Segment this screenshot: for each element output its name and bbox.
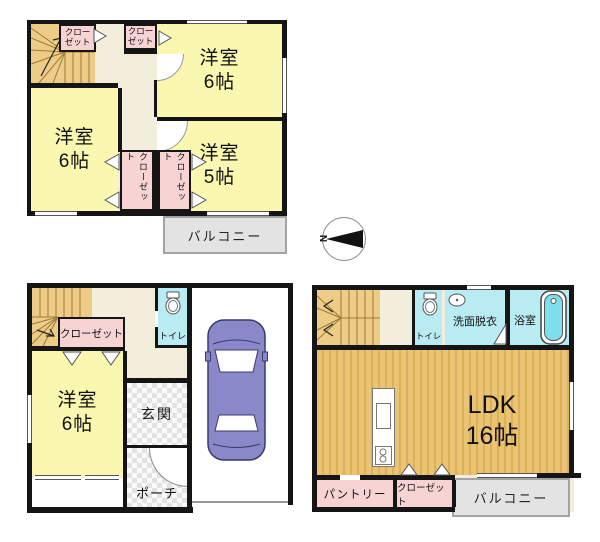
toilet-room: トイレ: [155, 288, 187, 348]
car-icon: [205, 318, 268, 463]
bathroom: 浴室: [510, 290, 569, 345]
closet-top-left: クロー ゼット: [59, 24, 96, 52]
door-opening: [340, 475, 360, 480]
toilet-room: トイレ: [412, 290, 442, 345]
window: [569, 382, 574, 430]
door-opening: [155, 311, 158, 327]
wall: [157, 117, 282, 121]
closet-top-mid: クロー ゼット: [124, 24, 157, 50]
carport-edge: [192, 501, 293, 503]
bedroom-top-right: 洋室6帖: [157, 24, 282, 117]
door-swing-arc: [149, 448, 188, 487]
folding-door-icon: [400, 463, 418, 476]
pantry-label: パントリー: [323, 486, 386, 502]
closet-label: クロー ゼット: [128, 27, 154, 47]
yard-strip: [32, 478, 123, 507]
folding-door-icon: [101, 351, 121, 366]
compass: N: [322, 217, 366, 261]
window: [35, 211, 77, 216]
washroom-label: 洗面脱衣: [453, 313, 497, 329]
ldk-room: LDK 16帖: [317, 350, 569, 475]
wall: [317, 345, 569, 350]
closet-label: クローゼット: [162, 152, 188, 209]
kitchen-sink: [376, 403, 391, 429]
wall: [154, 80, 157, 117]
wall: [123, 351, 127, 508]
window: [85, 475, 119, 480]
folding-door-icon: [104, 191, 120, 209]
wall: [31, 83, 118, 88]
porch-label: ポーチ: [136, 483, 178, 502]
folding-door-icon: [62, 351, 82, 366]
balcony-label: バルコニー: [188, 226, 263, 245]
closet: クローゼット: [397, 480, 452, 507]
room-size: 6帖: [54, 150, 94, 174]
window: [27, 395, 32, 443]
folding-door-icon: [191, 191, 207, 209]
wall: [118, 88, 122, 152]
pantry: パントリー: [317, 480, 393, 507]
balcony-top: バルコニー: [163, 216, 287, 254]
floor-plan-top: 洋室6帖 洋室6帖 洋室5帖: [27, 20, 287, 216]
entrance-hall: 玄関: [127, 383, 187, 445]
bathtub-icon: [540, 290, 567, 345]
closet-bottom-left: クローゼット: [120, 150, 154, 211]
wall: [288, 283, 293, 505]
stove-icon: [375, 446, 392, 465]
door-triangle-right: [93, 28, 107, 44]
bedroom: 洋室6帖: [32, 351, 123, 475]
wall: [187, 283, 192, 507]
balcony-label: バルコニー: [474, 488, 549, 507]
staircase: [317, 290, 380, 347]
bathroom-label: 浴室: [514, 312, 536, 328]
carport-apron: [192, 503, 293, 513]
door-triangle-right: [158, 30, 172, 46]
folding-door-icon: [191, 153, 207, 171]
floor-plan-sheet: 洋室6帖 洋室6帖 洋室5帖: [0, 0, 600, 542]
wall: [123, 445, 187, 448]
window: [467, 285, 491, 290]
wall: [312, 285, 574, 290]
room-name: 洋室: [54, 126, 94, 150]
wall: [452, 480, 456, 507]
floor-plan-bottom-right: LDK 16帖: [312, 285, 574, 512]
room-name: 洋室: [199, 47, 239, 71]
toilet-icon: [163, 291, 183, 315]
wall: [537, 473, 581, 478]
window: [282, 58, 287, 113]
window: [35, 475, 81, 480]
door-leaf: [493, 323, 507, 345]
room-name: 洋室: [57, 389, 97, 413]
porch: ポーチ: [127, 448, 187, 507]
sink-icon: [448, 293, 466, 307]
sliding-door: [207, 211, 269, 216]
wall: [282, 20, 287, 216]
closet-label: クローゼット: [124, 152, 150, 209]
wall: [27, 283, 293, 288]
toilet-icon: [420, 292, 440, 316]
window: [187, 20, 247, 24]
closet-label: クローゼット: [60, 326, 123, 341]
closet: クローゼット: [58, 317, 125, 349]
wall: [123, 378, 187, 383]
kitchen-counter: [372, 388, 395, 467]
room-size: 6帖: [199, 71, 239, 95]
sliding-door: [477, 473, 537, 478]
wall: [27, 20, 31, 216]
floor-plan-bottom-left: 洋室6帖 トイレ クローゼット 玄関 ポーチ: [27, 283, 293, 513]
toilet-label: トイレ: [158, 329, 187, 342]
wall: [27, 507, 193, 513]
balcony-bottom: バルコニー: [452, 478, 570, 517]
wall: [124, 50, 157, 54]
closet-bottom-right: クローゼット: [158, 150, 191, 211]
toilet-label: トイレ: [415, 330, 442, 342]
wall: [312, 285, 317, 512]
ldk-name: LDK: [422, 390, 562, 421]
entrance-label: 玄関: [141, 404, 173, 424]
closet-label: クロー ゼット: [65, 28, 91, 48]
closet-label: クローゼット: [397, 480, 452, 508]
folding-door-icon: [433, 463, 451, 476]
door-swing-arc: [157, 121, 188, 152]
door-swing-arc: [157, 54, 184, 81]
compass-north-label: N: [317, 235, 328, 242]
folding-door-icon: [104, 153, 120, 171]
compass-needle: [323, 218, 365, 260]
room-size: 6帖: [57, 413, 97, 437]
ldk-size: 16帖: [422, 421, 562, 452]
